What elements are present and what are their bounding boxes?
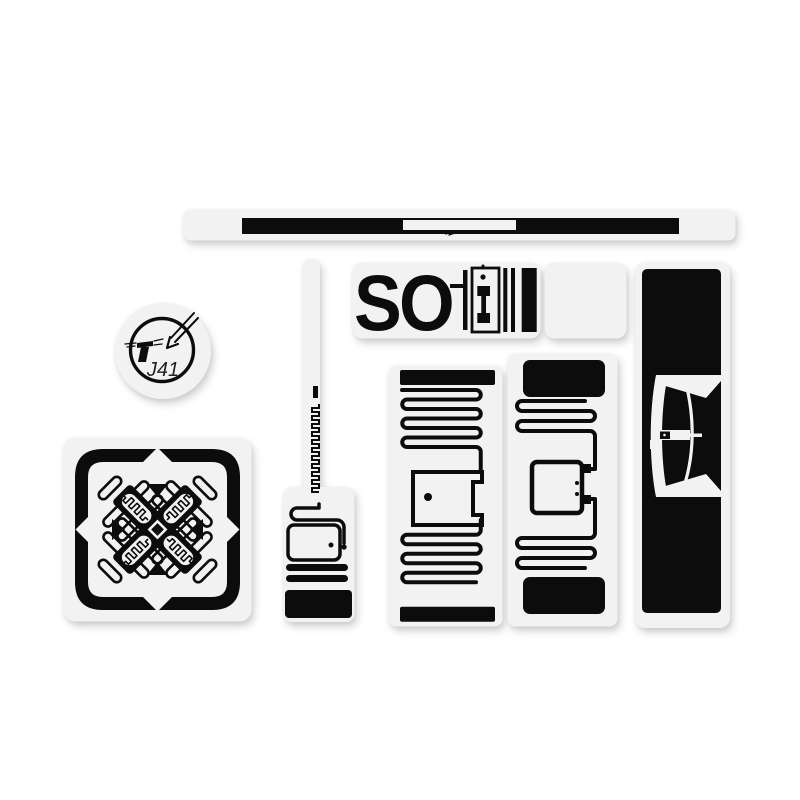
strip-window <box>403 220 516 230</box>
so-text: SO <box>354 262 452 339</box>
tall-antenna <box>642 269 721 613</box>
rfid-inlay-photo: J41 SO <box>0 0 800 800</box>
tall-black-inlay <box>633 259 732 631</box>
circle-code-text: J41 <box>146 359 179 381</box>
so-label-right <box>545 263 627 339</box>
square-cross-inlay <box>63 437 252 622</box>
stem-label <box>303 259 320 499</box>
so-inlay: SO <box>352 262 627 339</box>
meander-inlay-b <box>507 353 618 627</box>
long-strip-inlay <box>183 209 736 242</box>
circular-tag: J41 <box>115 303 211 399</box>
long-stem-inlay <box>283 258 355 623</box>
meander-inlay-a <box>388 365 503 627</box>
meander-a-label <box>389 366 503 627</box>
